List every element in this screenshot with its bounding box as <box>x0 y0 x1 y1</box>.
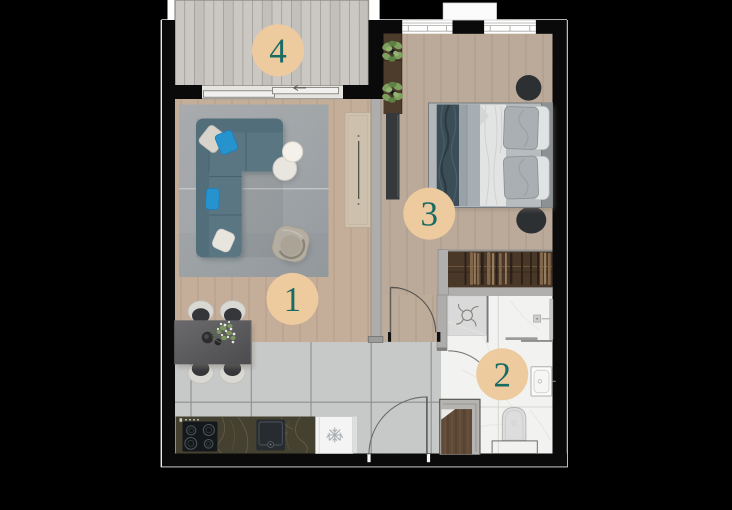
svg-text:3: 3 <box>421 195 439 234</box>
svg-text:1: 1 <box>284 280 302 319</box>
svg-text:4: 4 <box>269 31 287 70</box>
svg-text:2: 2 <box>493 355 511 394</box>
